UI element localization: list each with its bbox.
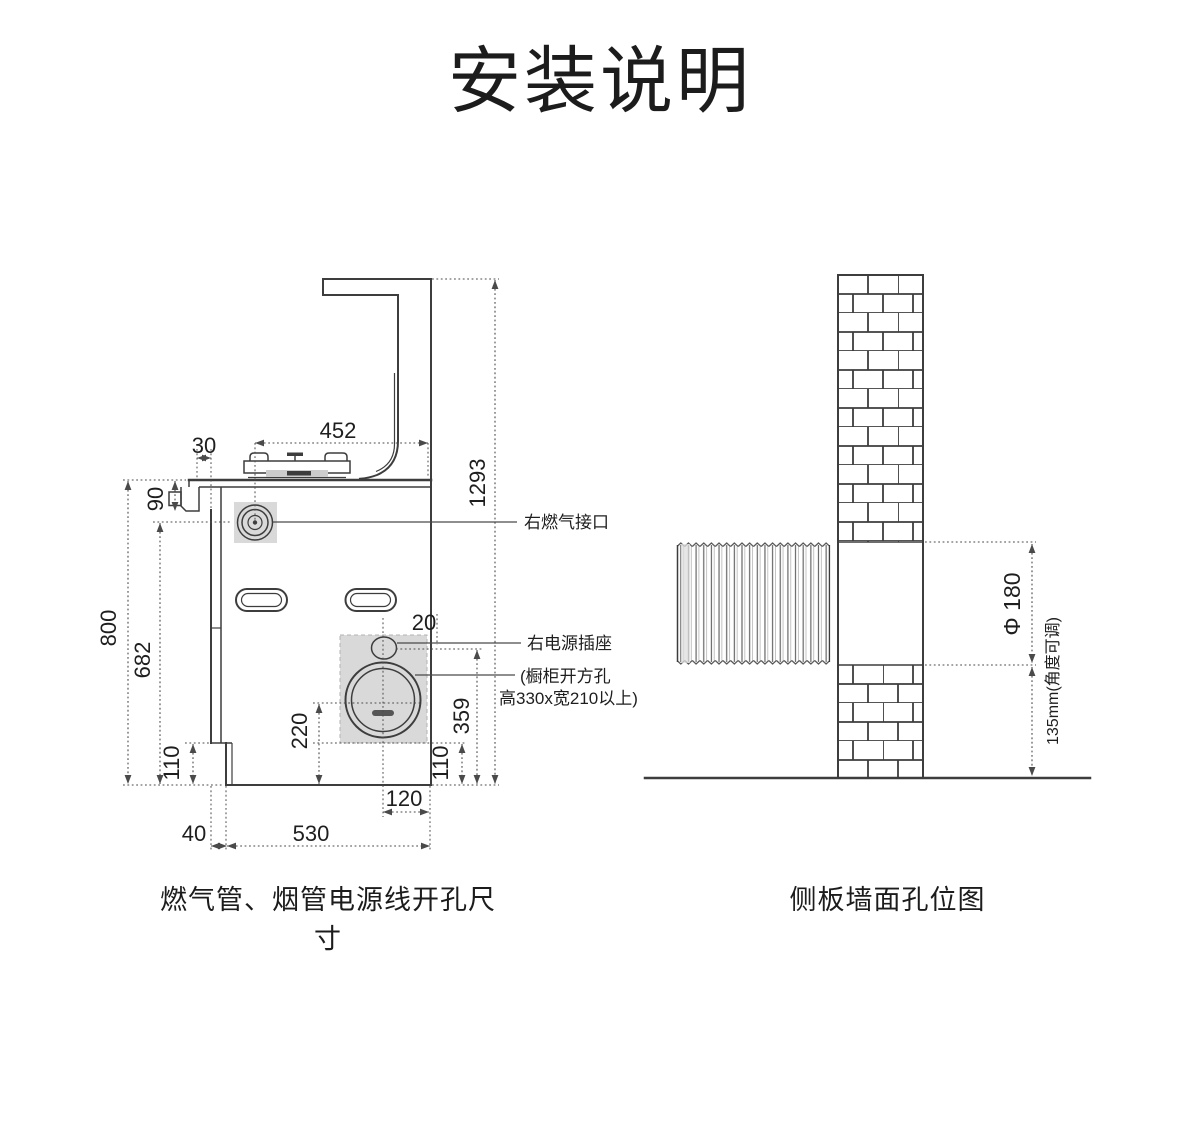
dim-40-label: 40 xyxy=(182,821,206,846)
pipe-collar xyxy=(681,544,690,663)
right-diagram-caption: 侧板墙面孔位图 xyxy=(785,878,990,917)
cabinet-cutout-annotation-line2: 高330x宽210以上) xyxy=(499,689,638,708)
dim-20-label: 20 xyxy=(412,610,436,635)
dim-30-label: 30 xyxy=(192,433,216,458)
dim-90-label: 90 xyxy=(143,487,168,511)
burner-grate xyxy=(287,471,311,476)
dim-359-label: 359 xyxy=(449,698,474,735)
exhaust-pipe xyxy=(677,542,830,665)
dim-135mm-label: 135mm(角度可调) xyxy=(1044,617,1062,745)
dim-800-label: 800 xyxy=(96,610,121,647)
installation-diagram: 452 30 90 800 682 110 220 110 359 1293 2… xyxy=(0,0,1200,1130)
dim-530-label: 530 xyxy=(293,821,330,846)
manual-page: { "title": "安装说明", "left_diagram": { "ca… xyxy=(0,0,1200,1130)
right-diagram: Φ 180 135mm(角度可调) xyxy=(645,275,1090,778)
dim-110-right-label: 110 xyxy=(428,745,453,780)
left-diagram: 452 30 90 800 682 110 220 110 359 1293 2… xyxy=(96,279,638,852)
dim-682-label: 682 xyxy=(130,642,155,679)
dim-220-label: 220 xyxy=(287,713,312,750)
annotation-labels: 右燃气接口 右电源插座 (橱柜开方孔 高330x宽210以上) xyxy=(499,513,638,708)
brick-wall xyxy=(838,275,923,778)
right-dimension-labels: Φ 180 135mm(角度可调) xyxy=(999,572,1062,745)
dim-452-label: 452 xyxy=(320,418,357,443)
dim-110-left-label: 110 xyxy=(159,745,184,780)
gas-port-annotation: 右燃气接口 xyxy=(524,513,609,532)
power-socket-annotation: 右电源插座 xyxy=(527,634,612,653)
cooktop-burner xyxy=(244,453,350,478)
burner-igniter xyxy=(287,453,303,457)
dim-diameter-label: Φ 180 xyxy=(999,572,1025,635)
left-diagram-caption: 燃气管、烟管电源线开孔尺寸 xyxy=(148,878,508,956)
dim-120-label: 120 xyxy=(386,786,423,811)
dim-1293-label: 1293 xyxy=(465,459,490,508)
handle-slots xyxy=(236,589,396,611)
gas-valve-protrusion xyxy=(169,487,199,511)
cabinet-cutout-annotation-line1: (橱柜开方孔 xyxy=(520,667,611,686)
counter-top xyxy=(189,479,431,487)
